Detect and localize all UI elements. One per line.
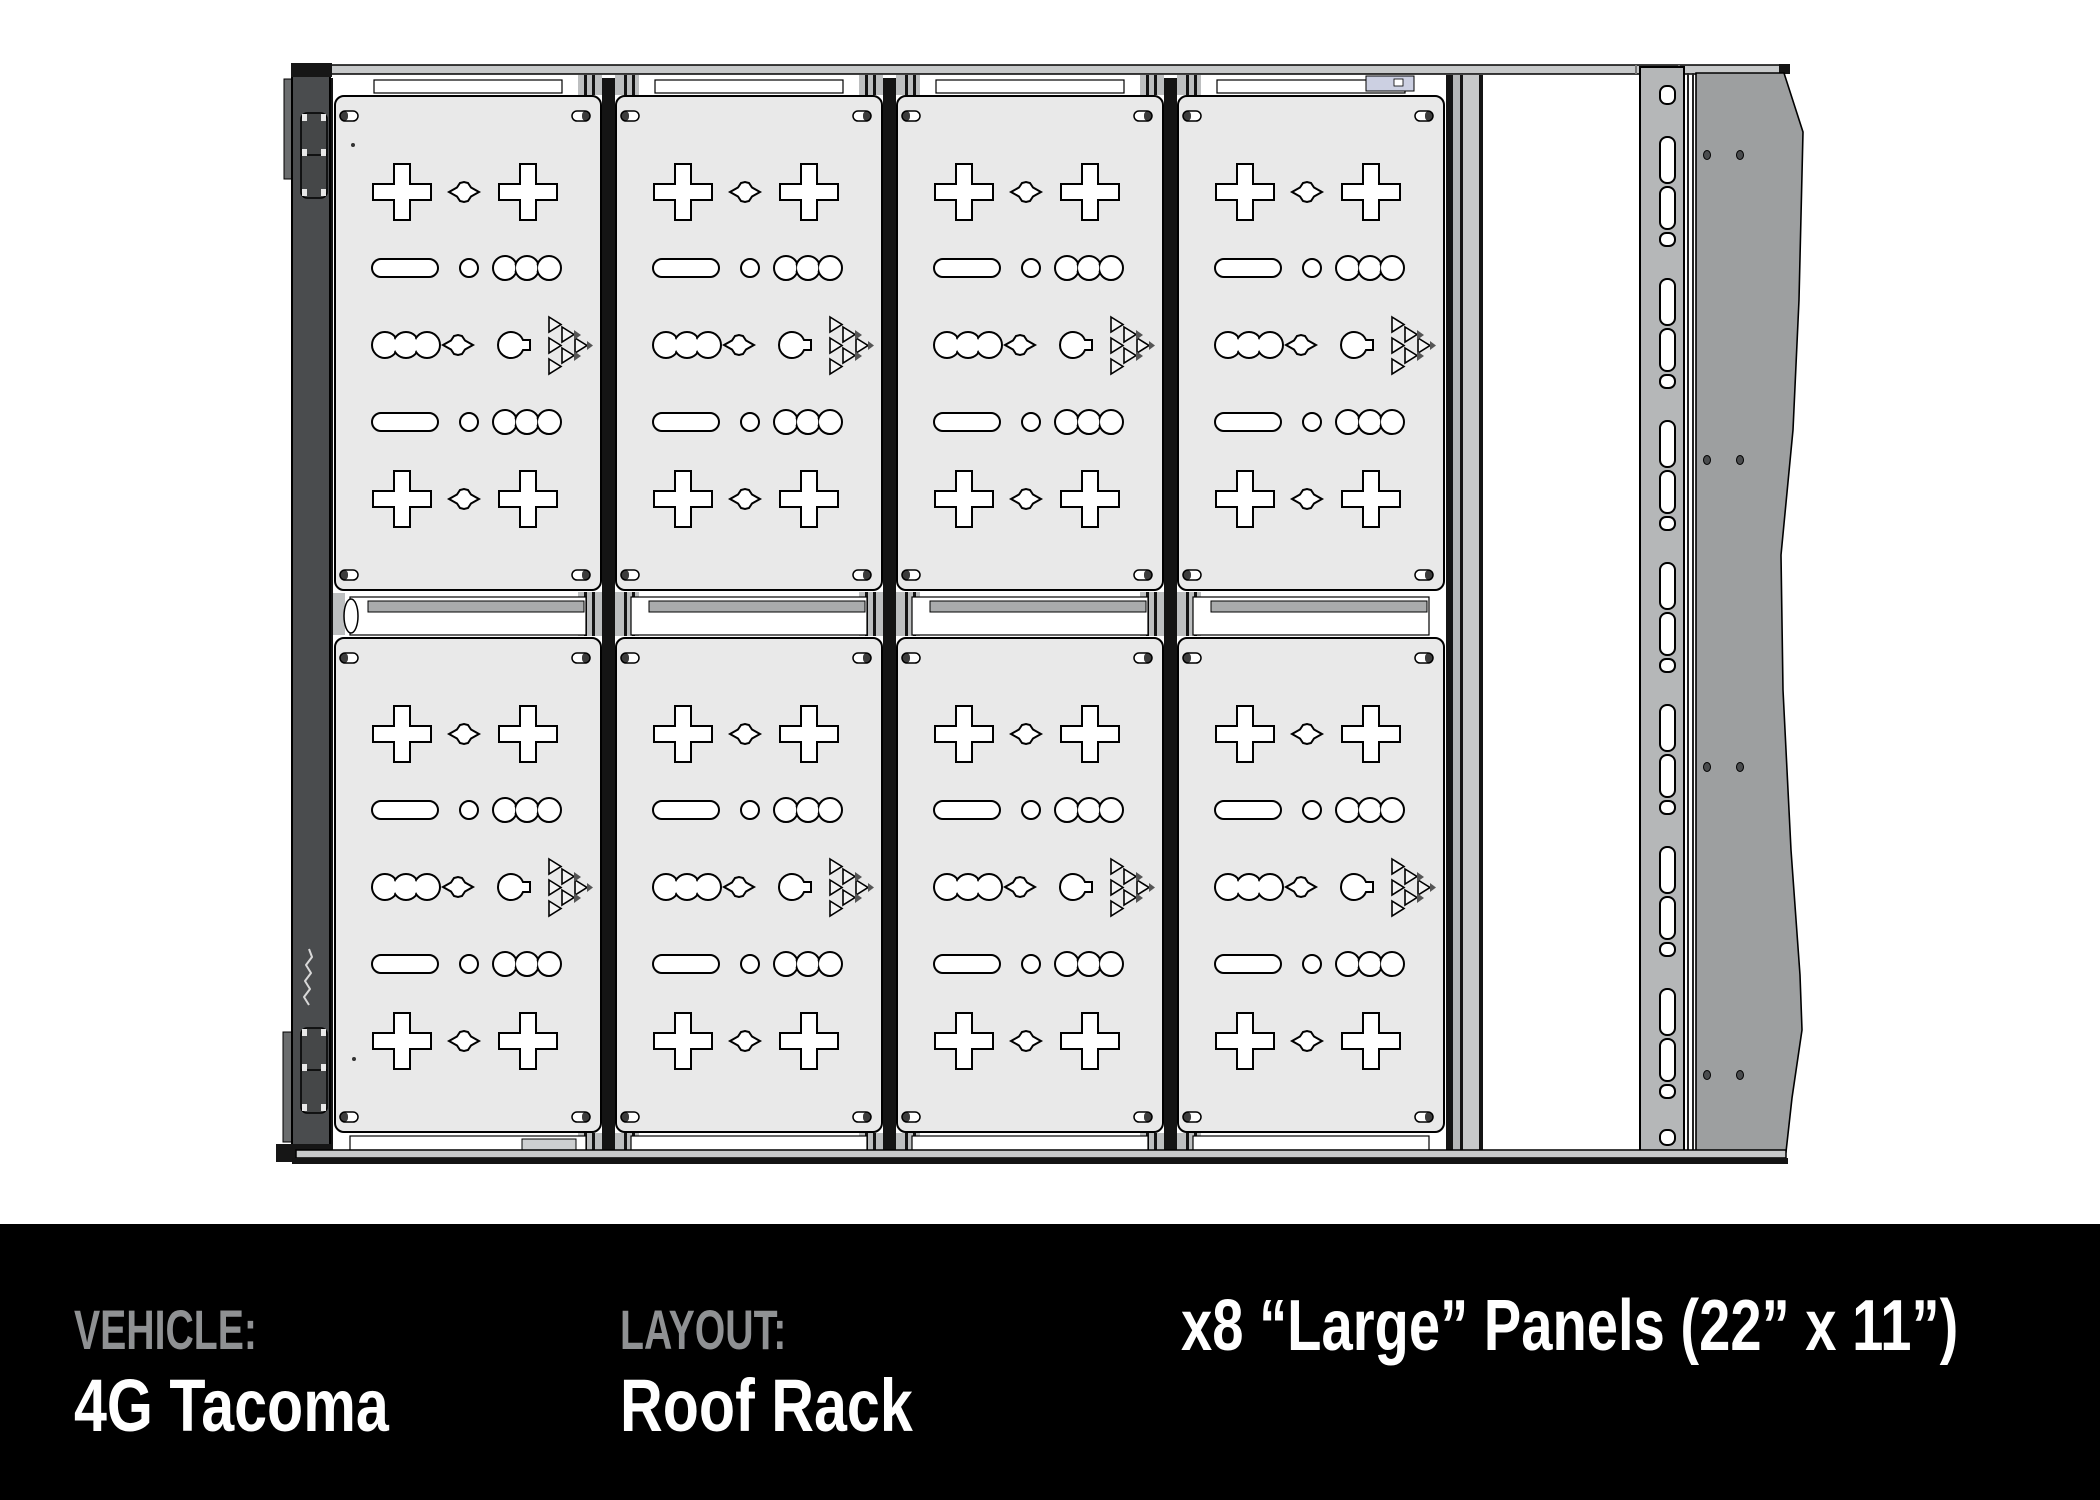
spec-sheet-canvas: VEHICLE: 4G Tacoma LAYOUT: Roof Rack x8 …: [0, 0, 2100, 1500]
vehicle-value: 4G Tacoma: [74, 1369, 389, 1443]
panel-gap-band: [1164, 78, 1177, 1156]
rack-top-view-drawing: [0, 0, 2100, 1224]
top-crossbar: [936, 80, 1124, 93]
slotted-accessory-rail: [1640, 67, 1694, 1158]
vehicle-label: VEHICLE:: [74, 1302, 257, 1358]
clamp-accent: [1366, 76, 1414, 91]
panel-count-note: x8 “Large” Panels (22” x 11”): [1181, 1290, 1958, 1362]
rail-clamp-bracket-top: [301, 113, 327, 198]
rear-frame-bar: [296, 1150, 1786, 1158]
top-crossbar: [655, 80, 843, 93]
roof-panel-r1c1: [335, 96, 601, 590]
top-crossbar: [374, 80, 562, 93]
frame-seam: [1635, 65, 1637, 74]
front-frame-bar: [296, 65, 1784, 74]
roof-panel-r2c2: [616, 638, 882, 1132]
rail-top-cap: [291, 63, 332, 77]
roof-panel-r1c2: [616, 96, 882, 590]
roof-panel-r2c4: [1178, 638, 1444, 1132]
speck: [352, 1057, 356, 1061]
panel-gap-band: [883, 78, 896, 1156]
roof-panel-r2c3: [897, 638, 1163, 1132]
roof-panel-r1c4: [1178, 96, 1444, 590]
layout-value: Roof Rack: [620, 1369, 913, 1443]
left-mount-rail: [276, 63, 333, 1162]
roof-panel-r1c3: [897, 96, 1163, 590]
panel-gap-band: [602, 78, 615, 1156]
roof-panel-r2c1: [335, 638, 601, 1132]
rail-clamp-bracket-bottom: [301, 1028, 327, 1113]
layout-label: LAYOUT:: [620, 1302, 786, 1358]
rear-frame-edge: [292, 1158, 1788, 1164]
right-side-rail-lines: [1446, 75, 1483, 1155]
side-plate: [1696, 73, 1803, 1156]
crossbar-end-cap: [344, 599, 358, 633]
speck: [351, 143, 355, 147]
